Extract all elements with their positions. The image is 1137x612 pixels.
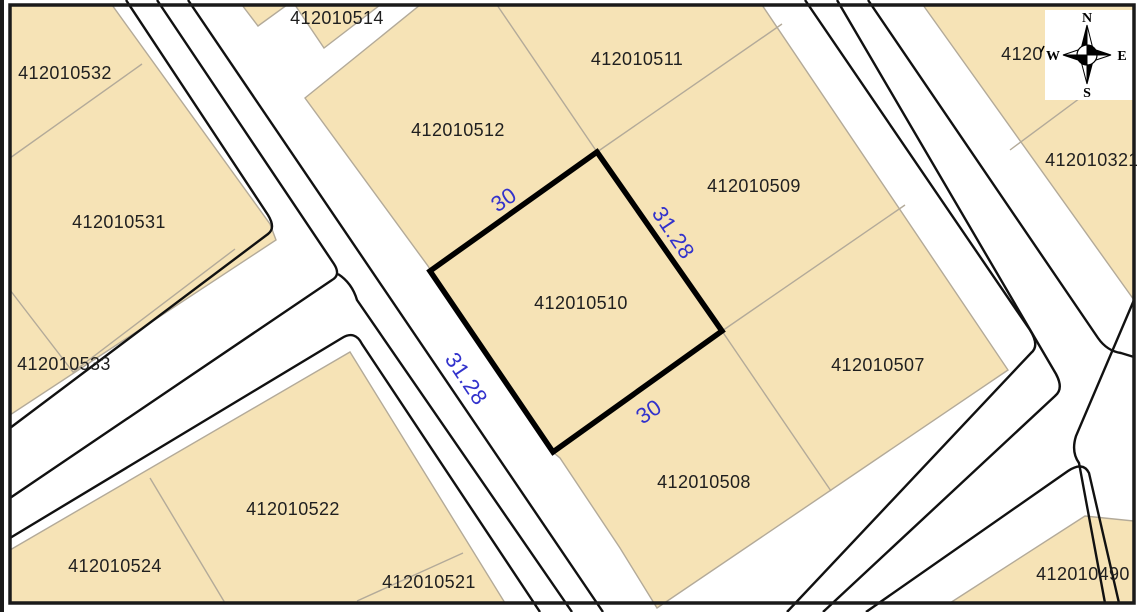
compass-n: N <box>1082 11 1092 26</box>
parcel-label: 412010514 <box>290 8 384 28</box>
parcel-label: 412010507 <box>831 355 925 375</box>
compass-e: E <box>1117 49 1126 64</box>
parcel-label-partial: 4120 <box>1001 44 1043 64</box>
compass-rose: N E S W <box>1041 10 1134 101</box>
parcel-412010490-block[interactable] <box>950 516 1134 603</box>
cadastral-map[interactable]: 30 31.28 31.28 30 412010514 412010532 41… <box>0 0 1137 612</box>
parcel-label: 412010521 <box>382 572 476 592</box>
parcel-label: 412010509 <box>707 176 801 196</box>
parcel-label: 412010321 <box>1045 150 1137 170</box>
parcel-label: 412010508 <box>657 472 751 492</box>
compass-s: S <box>1083 86 1091 101</box>
parcel-label: 412010532 <box>18 63 112 83</box>
parcel-label: 412010490 <box>1036 564 1130 584</box>
parcel-label: 412010531 <box>72 212 166 232</box>
parcel-top-wedge[interactable] <box>242 5 287 26</box>
map-viewport[interactable]: 30 31.28 31.28 30 412010514 412010532 41… <box>0 0 1137 612</box>
parcel-label: 412010511 <box>591 49 683 69</box>
parcel-label: 412010510 <box>534 293 628 313</box>
parcel-label: 412010524 <box>68 556 162 576</box>
parcel-label: 412010512 <box>411 120 505 140</box>
parcel-label: 412010533 <box>17 354 111 374</box>
left-edge-bar <box>0 0 4 612</box>
parcel-label: 412010522 <box>246 499 340 519</box>
dimension-label-left: 31.28 <box>440 348 493 410</box>
compass-w: W <box>1046 49 1060 64</box>
